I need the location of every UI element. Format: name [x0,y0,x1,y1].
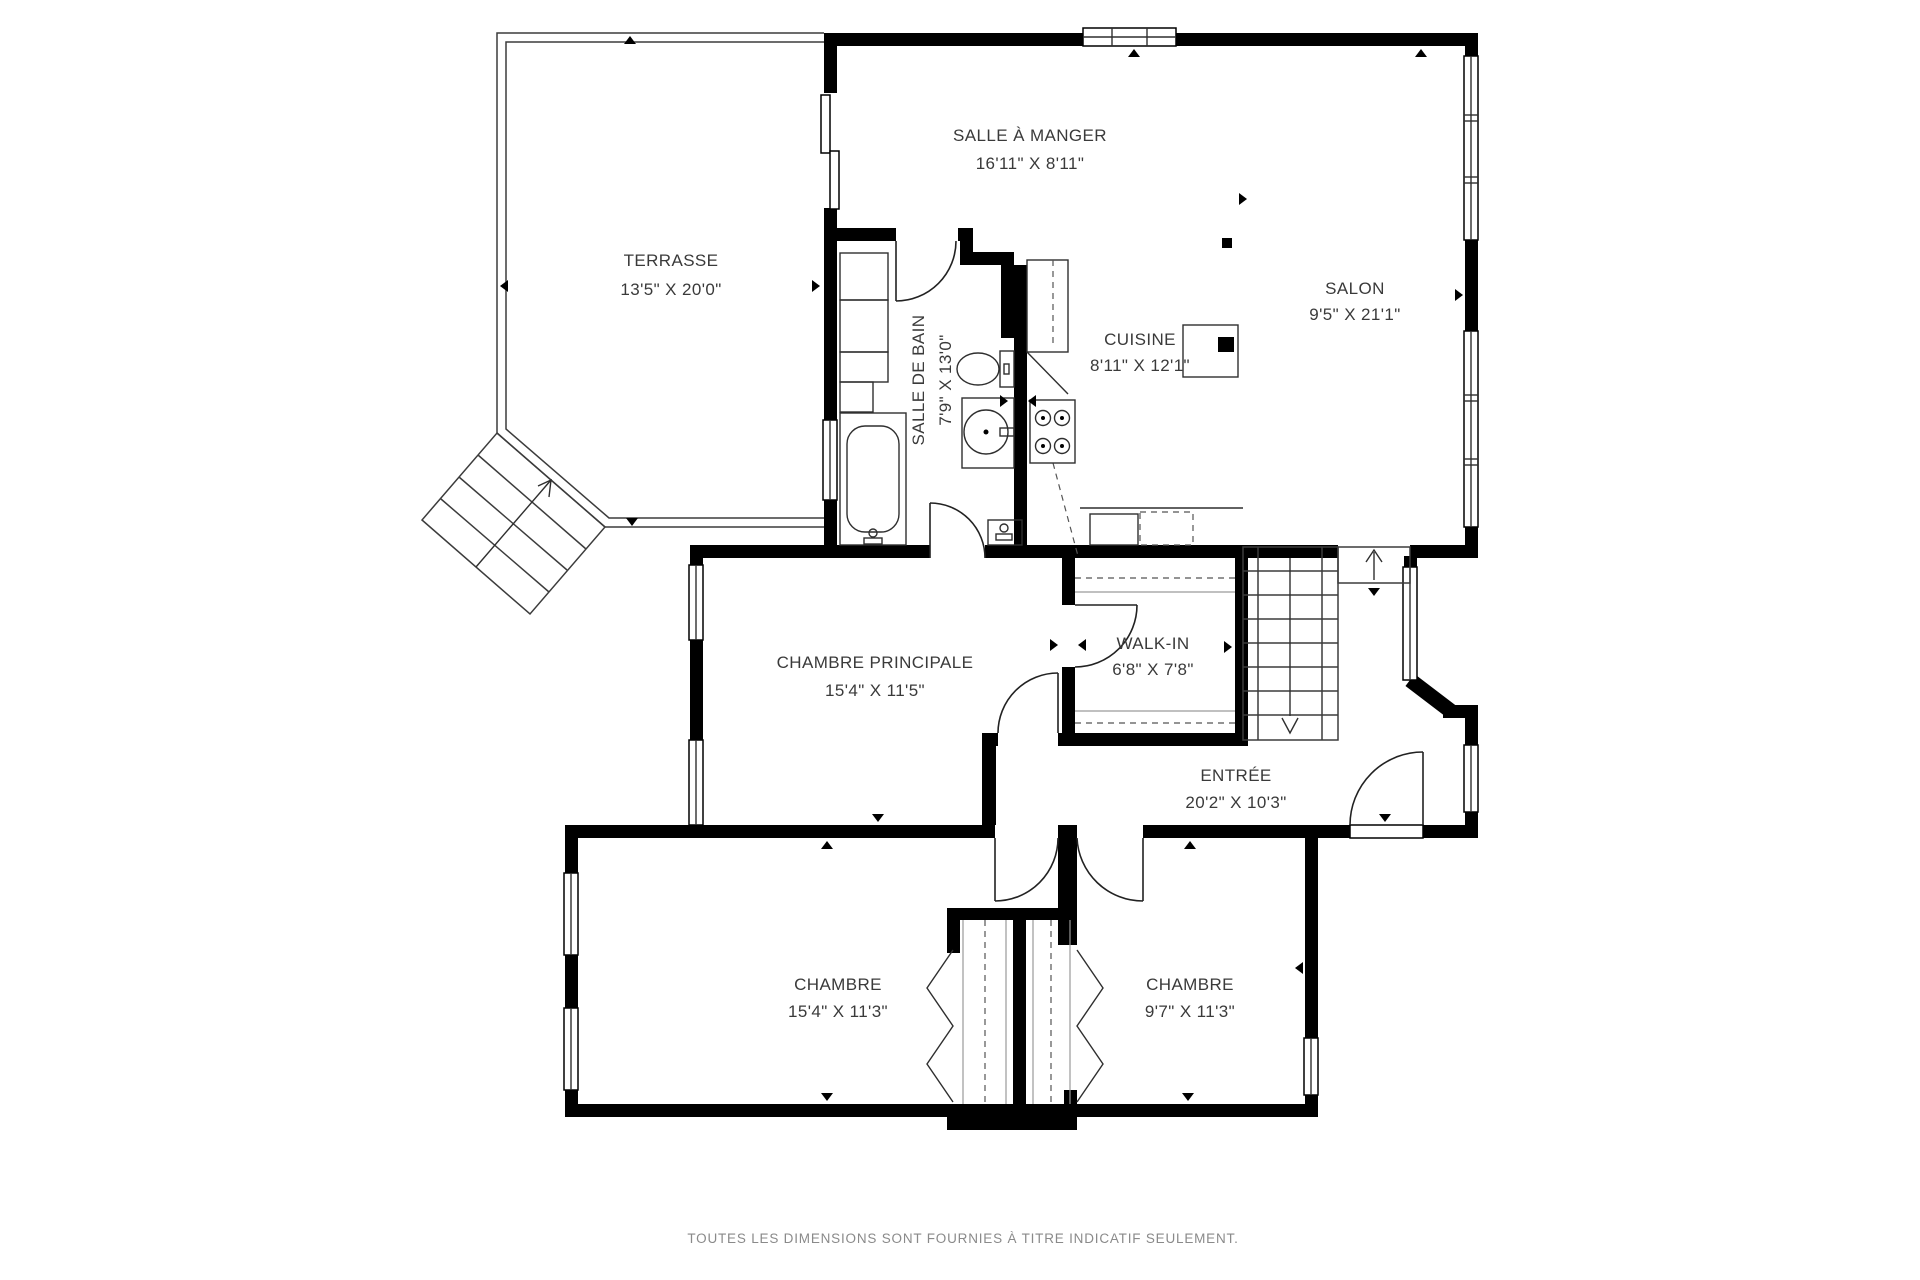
cooktop [1030,400,1075,463]
bathroom-fixtures [840,253,1022,545]
svg-text:13'5" X 20'0": 13'5" X 20'0" [620,280,721,299]
bedroom-left-door [995,838,1058,901]
kitchen-island [1183,325,1238,377]
window-master-2 [689,740,703,825]
svg-text:CHAMBRE: CHAMBRE [1146,975,1234,994]
room-label-cuisine: CUISINE 8'11" X 12'1" [1090,330,1190,375]
svg-text:6'8" X 7'8": 6'8" X 7'8" [1112,660,1194,679]
window-bedroom-left-2 [564,1008,578,1090]
window-master-1 [689,565,703,640]
cabinet [840,253,888,300]
svg-text:9'7" X 11'3": 9'7" X 11'3" [1145,1002,1235,1021]
bedroom-right-door [1077,838,1143,901]
stairs-up-arrow [476,480,551,567]
basement-stairs [1243,547,1338,740]
dishwasher [1140,512,1193,545]
toilet [957,351,1014,387]
master-bedroom-door [998,673,1058,733]
svg-text:CHAMBRE: CHAMBRE [794,975,882,994]
svg-text:15'4" X 11'5": 15'4" X 11'5" [825,681,925,700]
window-bathroom-left [823,420,837,500]
stairs-down-arrow [1282,558,1298,733]
cabinet [840,300,888,352]
room-label-chambre-principale: CHAMBRE PRINCIPALE 15'4" X 11'5" [777,653,974,700]
terrace-deck [422,33,824,614]
room-label-terrasse: TERRASSE 13'5" X 20'0" [620,251,721,299]
column [1222,238,1232,248]
room-label-salle-a-manger: SALLE À MANGER 16'11" X 8'11" [953,126,1107,173]
bifold-door-right [1077,950,1103,1102]
cabinet [840,352,888,382]
bifold-door-left [927,950,953,1102]
window-salon-right-2 [1464,331,1478,527]
room-label-chambre-droite: CHAMBRE 9'7" X 11'3" [1145,975,1235,1021]
bathroom-sink [962,398,1014,468]
patio-sliding-door [821,95,839,209]
bathroom-door-bottom [930,503,985,558]
svg-text:ENTRÉE: ENTRÉE [1200,766,1271,785]
svg-text:8'11" X 12'1": 8'11" X 12'1" [1090,356,1190,375]
room-label-entree: ENTRÉE 20'2" X 10'3" [1185,766,1286,812]
window-top [1083,28,1176,46]
kitchen-counter [1027,260,1068,352]
window-entry-right [1464,745,1478,812]
svg-text:9'5" X 21'1": 9'5" X 21'1" [1309,305,1400,324]
room-label-salon: SALON 9'5" X 21'1" [1309,279,1400,324]
floor-plan-page: TERRASSE 13'5" X 20'0" SALLE À MANGER 16… [0,0,1920,1280]
svg-text:7'9" X 13'0": 7'9" X 13'0" [936,334,955,425]
svg-text:16'11" X 8'11": 16'11" X 8'11" [976,154,1085,173]
wall-markers [500,36,1463,1101]
deck-stairs [422,433,605,614]
window-salon-right-1 [1464,56,1478,240]
svg-text:TERRASSE: TERRASSE [624,251,719,270]
room-label-chambre-gauche: CHAMBRE 15'4" X 11'3" [788,975,888,1021]
svg-text:SALON: SALON [1325,279,1385,298]
svg-text:CHAMBRE PRINCIPALE: CHAMBRE PRINCIPALE [777,653,974,672]
room-label-walk-in: WALK-IN 6'8" X 7'8" [1112,634,1194,679]
svg-text:SALLE DE BAIN: SALLE DE BAIN [909,315,928,446]
kitchen-fixtures [1027,238,1243,556]
room-label-salle-de-bain: SALLE DE BAIN 7'9" X 13'0" [909,315,955,446]
bathtub [840,413,906,545]
front-door-threshold [1350,825,1423,838]
svg-text:CUISINE: CUISINE [1104,330,1176,349]
window-bedroom-left-1 [564,873,578,955]
bathroom-door-top [896,241,956,301]
svg-text:SALLE À MANGER: SALLE À MANGER [953,126,1107,145]
footer-disclaimer: TOUTES LES DIMENSIONS SONT FOURNIES À TI… [687,1231,1238,1246]
cabinet [840,382,873,412]
svg-text:20'2" X 10'3": 20'2" X 10'3" [1185,793,1286,812]
svg-text:WALK-IN: WALK-IN [1116,634,1189,653]
landing-up-arrow [1366,550,1382,580]
svg-text:15'4" X 11'3": 15'4" X 11'3" [788,1002,888,1021]
window-entry-notch [1403,567,1417,680]
floor-plan-svg: TERRASSE 13'5" X 20'0" SALLE À MANGER 16… [0,0,1920,1280]
window-bedroom-right [1304,1038,1318,1095]
entry-landing [1338,547,1410,583]
kitchen-sink [1090,514,1138,545]
